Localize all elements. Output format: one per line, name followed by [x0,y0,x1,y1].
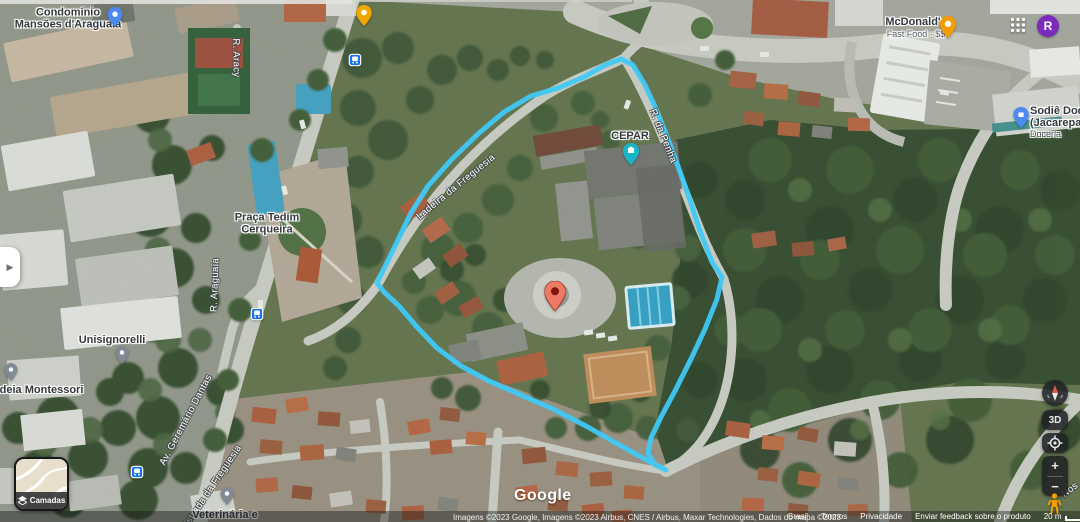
attribution-imagery: Imagens ©2023 Google, Imagens ©2023 Airb… [453,513,841,522]
google-logo: Google [514,487,572,505]
apps-grid-icon [1010,17,1026,33]
side-panel-toggle[interactable]: ▶ [0,247,20,287]
road-label-aracy: R. Aracy [230,38,242,77]
attribution-link-termos[interactable]: Termos [821,512,847,521]
pin-mcdonalds[interactable] [940,16,957,38]
attribution-link-brasil[interactable]: Brasil [788,512,808,521]
pin-unisignorelli[interactable] [116,346,129,364]
my-location-button[interactable] [1042,433,1068,453]
map-scale: 20 m [1044,512,1080,521]
attribution-link-feedback[interactable]: Enviar feedback sobre o produto [915,512,1031,521]
label-mcdonalds[interactable]: McDonald's Fast Food · $$ [885,17,946,39]
compass-needle-icon [1044,382,1066,404]
label-unisignorelli[interactable]: Unisignorelli [79,335,146,347]
pegman-icon [1047,493,1062,514]
pin-veterinaria[interactable] [221,487,234,505]
pin-cepar-school[interactable] [623,143,640,165]
property-marker[interactable] [545,281,566,311]
pin-ideia-montessori[interactable] [5,363,18,381]
pin-sodie-doces[interactable] [1013,107,1029,128]
bus-stop-icon[interactable] [251,308,264,321]
apps-grid-button[interactable] [1010,17,1026,33]
label-sodie-doces[interactable]: Sodiê Doce (Jacarepagu Doceria [1030,106,1080,140]
button-3d[interactable]: 3D [1042,410,1068,430]
satellite-imagery [0,0,1080,522]
pegman-button[interactable] [1047,493,1062,514]
road-label-araguaia: R. Araguaia [209,258,222,312]
zoom-in-button[interactable]: + [1042,456,1068,476]
scale-bar [1065,516,1080,521]
label-praca-tedim-cerqueira[interactable]: Praça Tedim Cerqueira [235,212,300,235]
layers-button[interactable]: Camadas [14,457,69,511]
bus-stop-icon[interactable] [349,54,362,67]
scale-label: 20 m [1044,512,1062,521]
my-location-icon [1047,435,1063,451]
zoom-controls: + − [1042,456,1068,496]
layers-icon [18,496,27,505]
label-ideia-montessori[interactable]: Ideia Montessori [0,385,83,397]
bus-stop-icon[interactable] [131,466,144,479]
layers-label: Camadas [30,496,66,505]
compass-button[interactable] [1042,380,1068,406]
pin-restaurant-yellow[interactable] [356,5,372,26]
label-cepar[interactable]: CEPAR [611,131,649,143]
chevron-right-icon: ▶ [7,262,14,273]
label-condominio-mansoes[interactable]: Condomínio Mansões d'Araguaia [15,7,122,30]
attribution-links: Brasil Termos Privacidade Enviar feedbac… [788,512,1080,521]
attribution-link-privacidade[interactable]: Privacidade [860,512,902,521]
map-canvas[interactable]: Condomínio Mansões d'Araguaia Praça Tedi… [0,0,1080,522]
account-avatar[interactable]: R [1037,15,1059,37]
pin-condominio[interactable] [108,7,123,27]
